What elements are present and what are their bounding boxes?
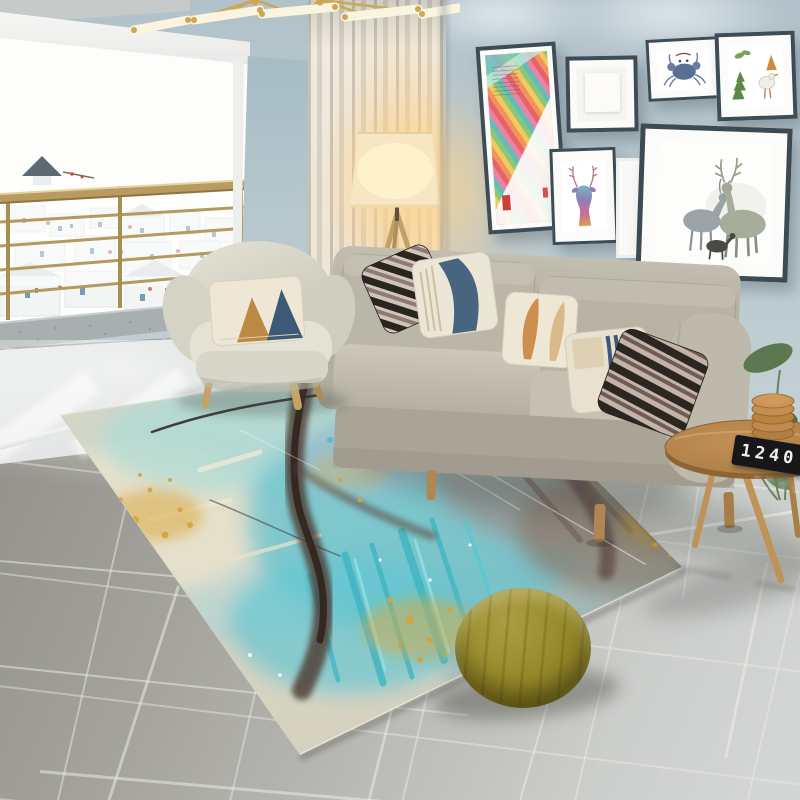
armchair-pillow (209, 276, 305, 346)
coaster-stack (752, 394, 794, 440)
book-spine-text: 1240 (739, 441, 798, 470)
armchair (150, 225, 370, 425)
pouf (455, 588, 591, 708)
sofa-pillow-navy-brush (411, 251, 499, 339)
living-room-scene: 1240 1240 (0, 0, 800, 800)
